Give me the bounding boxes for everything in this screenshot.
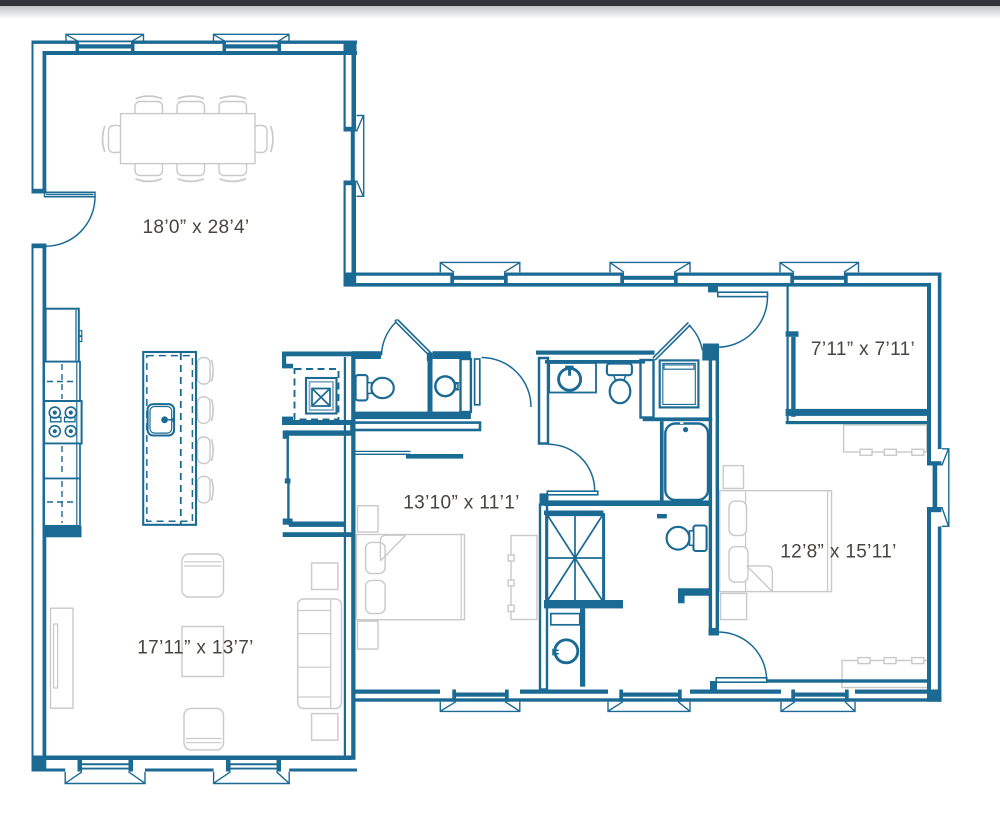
- svg-text:18’0” x 28’4’: 18’0” x 28’4’: [143, 217, 250, 238]
- svg-text:7’11” x 7’11’: 7’11” x 7’11’: [811, 339, 915, 360]
- svg-text:12’8” x 15’11’: 12’8” x 15’11’: [780, 542, 897, 563]
- svg-text:17’11” x 13’7’: 17’11” x 13’7’: [137, 638, 254, 659]
- svg-text:13’10” x 11’1’: 13’10” x 11’1’: [403, 493, 520, 514]
